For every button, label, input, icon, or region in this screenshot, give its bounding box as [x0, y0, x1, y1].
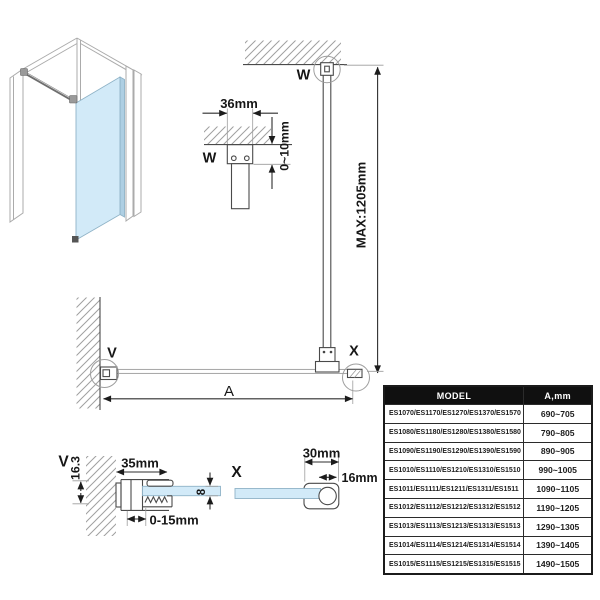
a-cell: 1090~1105 [523, 480, 592, 499]
dim-0-10mm-label: 0~10mm [278, 121, 292, 171]
glass-edge-3d [120, 77, 125, 217]
model-cell: ES1015/ES1115/ES1215/ES1315/ES1515 [384, 555, 523, 574]
a-cell: 1490~1505 [523, 555, 592, 574]
bar-glass-bracket [316, 362, 340, 373]
ceiling-mount [321, 63, 334, 76]
bar-cross-section [319, 487, 336, 504]
bar-glass-fitting-3d [70, 96, 78, 104]
dim-max-label: MAX:1205mm [354, 162, 369, 249]
front-view: W MAX:1205mm [243, 41, 384, 374]
dim-8-label: 8 [196, 488, 208, 495]
vertical-support-bar [323, 75, 331, 348]
right-wall-panel-outer [134, 70, 141, 217]
model-cell: ES1014/ES1114/ES1214/ES1314/ES1514 [384, 536, 523, 555]
plan-view: V X A [77, 297, 384, 410]
table-row: ES1013/ES1113/ES1213/ES1313/ES1513 1290~… [384, 517, 592, 536]
model-cell: ES1012/ES1112/ES1212/ES1312/ES1512 [384, 498, 523, 517]
table-row: ES1010/ES1110/ES1210/ES1310/ES1510 990~1… [384, 461, 592, 480]
table-row: ES1015/ES1115/ES1215/ES1315/ES1515 1490~… [384, 555, 592, 574]
model-cell: ES1080/ES1180/ES1280/ES1380/ES1580 [384, 423, 523, 442]
model-cell: ES1090/ES1190/ES1290/ES1390/ES1590 [384, 442, 523, 461]
ceiling-bracket [227, 145, 252, 164]
support-bar-3d [25, 73, 74, 101]
bar-wall-fitting-3d [21, 69, 28, 76]
plan-view-v-marker: V [107, 346, 117, 362]
a-cell: 890~905 [523, 442, 592, 461]
isometric-view [10, 38, 142, 243]
model-size-table: MODEL A,mm ES1070/ES1170/ES1270/ES1370/E… [383, 385, 593, 575]
table-row: ES1011/ES1111/ES1211/ES1311/ES1511 1090~… [384, 480, 592, 499]
table-header-row: MODEL A,mm [384, 386, 592, 405]
model-cell: ES1011/ES1111/ES1211/ES1311/ES1511 [384, 480, 523, 499]
table-row: ES1080/ES1180/ES1280/ES1380/ES1580 790~8… [384, 423, 592, 442]
detail-x-marker: X [231, 464, 242, 481]
glass-foot-3d [72, 236, 79, 243]
a-cell: 1190~1205 [523, 498, 592, 517]
dim-a-label: A [224, 383, 234, 400]
model-cell: ES1010/ES1110/ES1210/ES1310/ES1510 [384, 461, 523, 480]
model-column-header: MODEL [384, 386, 523, 405]
a-cell: 1390~1405 [523, 536, 592, 555]
left-wall-panel [10, 69, 23, 222]
dim-16mm-label: 16mm [342, 471, 378, 485]
table-row: ES1014/ES1114/ES1214/ES1314/ES1514 1390~… [384, 536, 592, 555]
bar-lower-fitting [320, 348, 336, 362]
a-cell: 990~1005 [523, 461, 592, 480]
support-bar-section [232, 164, 250, 209]
glass-section-x [235, 489, 321, 499]
glass-clamp-plan [348, 369, 363, 377]
dim-36mm-label: 36mm [220, 96, 258, 111]
glass-section-v [143, 486, 221, 495]
detail-w-marker: W [203, 151, 217, 167]
installation-diagram: 36mm 0~10mm W W MAX:1205mm V [0, 0, 600, 600]
model-cell: ES1013/ES1113/ES1213/ES1313/ES1513 [384, 517, 523, 536]
detail-x: X 30mm 16mm [231, 446, 377, 509]
a-cell: 1290~1305 [523, 517, 592, 536]
dim-0-15mm-label: 0-15mm [150, 513, 199, 528]
ceiling-hatch-detail [204, 127, 271, 145]
model-cell: ES1070/ES1170/ES1270/ES1370/ES1570 [384, 405, 523, 424]
table-row: ES1012/ES1112/ES1212/ES1312/ES1512 1190~… [384, 498, 592, 517]
dim-35mm-label: 35mm [121, 456, 159, 471]
detail-w: 36mm 0~10mm W [203, 96, 293, 209]
wall-hatch-detail [86, 456, 116, 536]
right-wall-panel-inner [126, 66, 133, 221]
ceiling-hatch [245, 41, 341, 65]
dim-30mm-label: 30mm [303, 446, 341, 461]
profile-grip-teeth [145, 497, 167, 503]
profile-wall-flange [116, 483, 121, 507]
detail-v: V 16.3 35mm 0-15mm 8 [58, 454, 220, 537]
wall-hatch [77, 298, 101, 409]
table-row: ES1090/ES1190/ES1290/ES1390/ES1590 890~9… [384, 442, 592, 461]
table-row: ES1070/ES1170/ES1270/ES1370/ES1570 690~7… [384, 405, 592, 424]
a-column-header: A,mm [523, 386, 592, 405]
glass-panel-3d [76, 77, 120, 240]
profile-top-cap [147, 480, 173, 486]
a-cell: 790~805 [523, 423, 592, 442]
a-cell: 690~705 [523, 405, 592, 424]
plan-view-x-marker: X [349, 344, 359, 360]
dim-16-3-label: 16.3 [69, 456, 83, 480]
front-view-w-marker: W [297, 68, 311, 84]
